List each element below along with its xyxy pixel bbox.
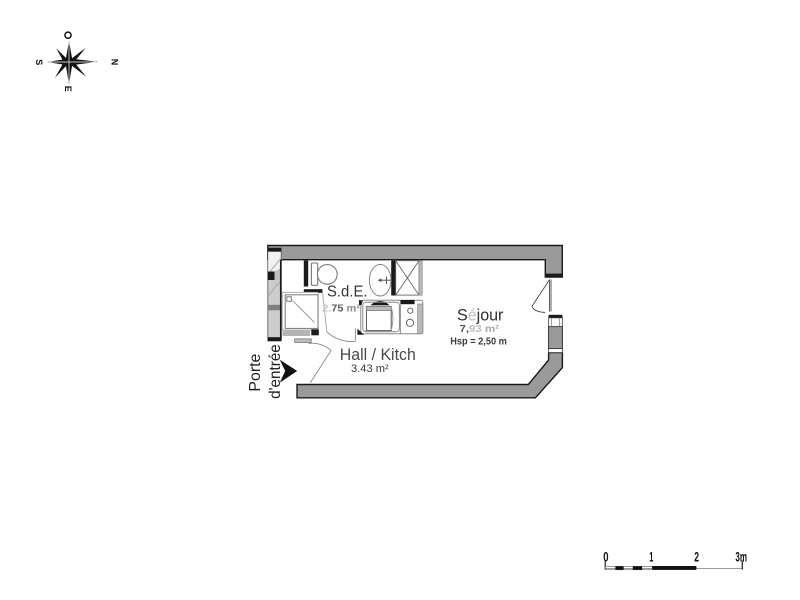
- svg-text:0: 0: [603, 549, 608, 565]
- svg-text:S: S: [34, 59, 44, 65]
- svg-text:7,93 m²: 7,93 m²: [460, 324, 500, 335]
- svg-text:Séjour: Séjour: [457, 305, 504, 324]
- svg-text:Hsp = 2,50 m: Hsp = 2,50 m: [450, 336, 507, 348]
- svg-text:1: 1: [649, 549, 653, 565]
- svg-text:Porte: Porte: [247, 354, 264, 392]
- svg-text:N: N: [109, 59, 119, 66]
- svg-text:d'entrée: d'entrée: [267, 344, 284, 399]
- svg-text:S.d.E.: S.d.E.: [327, 284, 368, 301]
- svg-text:3m: 3m: [735, 549, 747, 565]
- svg-text:E: E: [63, 86, 73, 92]
- svg-text:3.43 m²: 3.43 m²: [351, 363, 389, 375]
- svg-text:Hall / Kitch: Hall / Kitch: [340, 346, 416, 364]
- svg-text:2: 2: [694, 549, 699, 565]
- svg-text:2.75 m²: 2.75 m²: [322, 303, 361, 314]
